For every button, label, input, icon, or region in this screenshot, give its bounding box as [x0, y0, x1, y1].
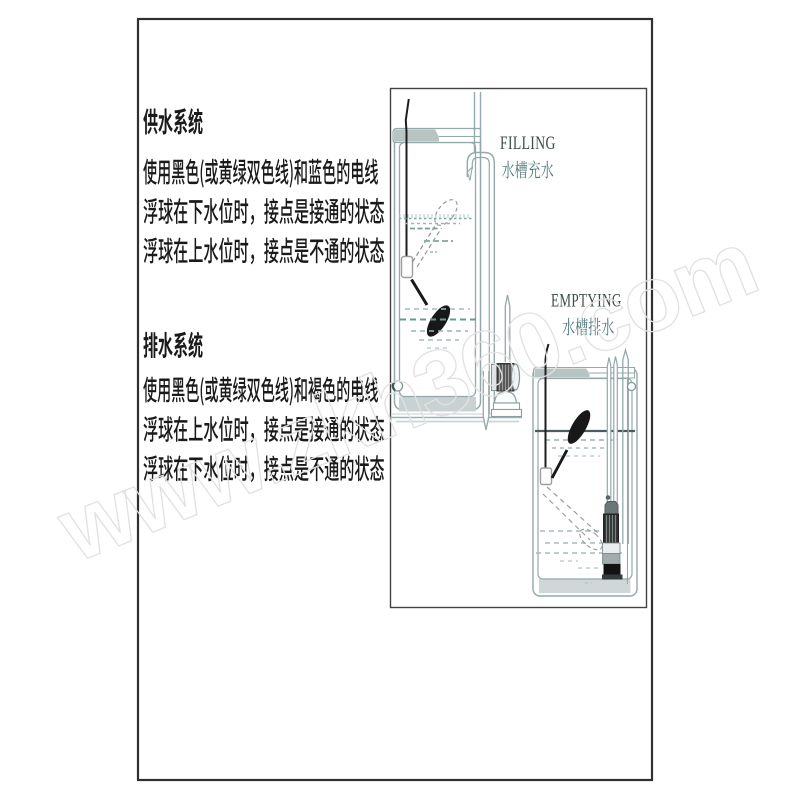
svg-text:FILLING: FILLING [500, 132, 556, 154]
